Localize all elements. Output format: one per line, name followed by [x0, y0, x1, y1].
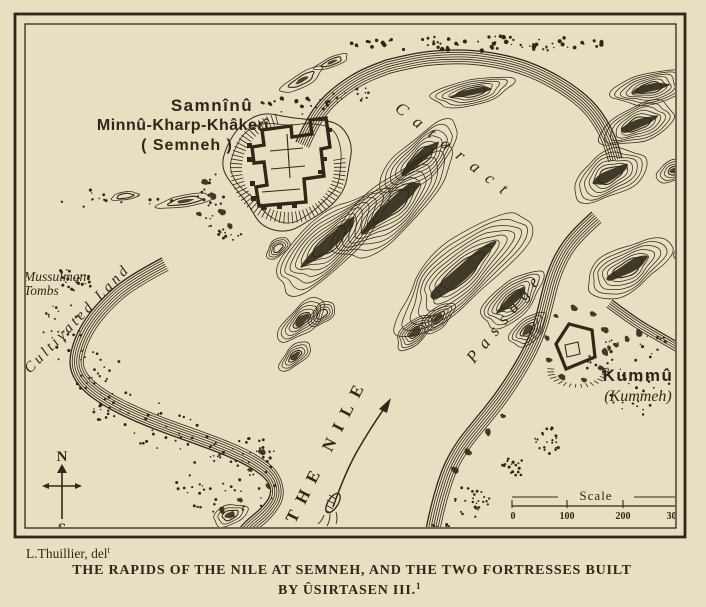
- scale-label: Scale: [579, 488, 612, 503]
- tombs-label-line1: Mussulman: [23, 269, 87, 284]
- caption-line1: THE RAPIDS OF THE NILE AT SEMNEH, AND TH…: [72, 563, 632, 578]
- scale-tick-0: 0: [511, 511, 516, 522]
- kummeh-label-name: Kummû: [603, 366, 674, 385]
- caption-line2: BY ÛSIRTASEN III.1: [278, 581, 421, 598]
- tombs-label-line2: Tombs: [24, 283, 59, 298]
- scale-tick-200: 200: [616, 511, 631, 522]
- kummeh-label-alt: (Kummeh): [604, 388, 672, 405]
- book-page: N S Scale 0 100 200 300 Samnînû Minnû-Kh…: [0, 0, 706, 607]
- semneh-label-line2: Minnû-Kharp-Khâkerî: [97, 117, 270, 134]
- scale-tick-100: 100: [560, 511, 575, 522]
- compass-north-label: N: [57, 449, 68, 465]
- semneh-label-line1: Samnînû: [171, 96, 253, 115]
- engraver-credit: L.Thuillier, delt: [26, 545, 111, 561]
- semneh-label-line3: ( Semneh ): [141, 137, 233, 154]
- map-engraving: N S Scale 0 100 200 300 Samnînû Minnû-Kh…: [0, 0, 706, 607]
